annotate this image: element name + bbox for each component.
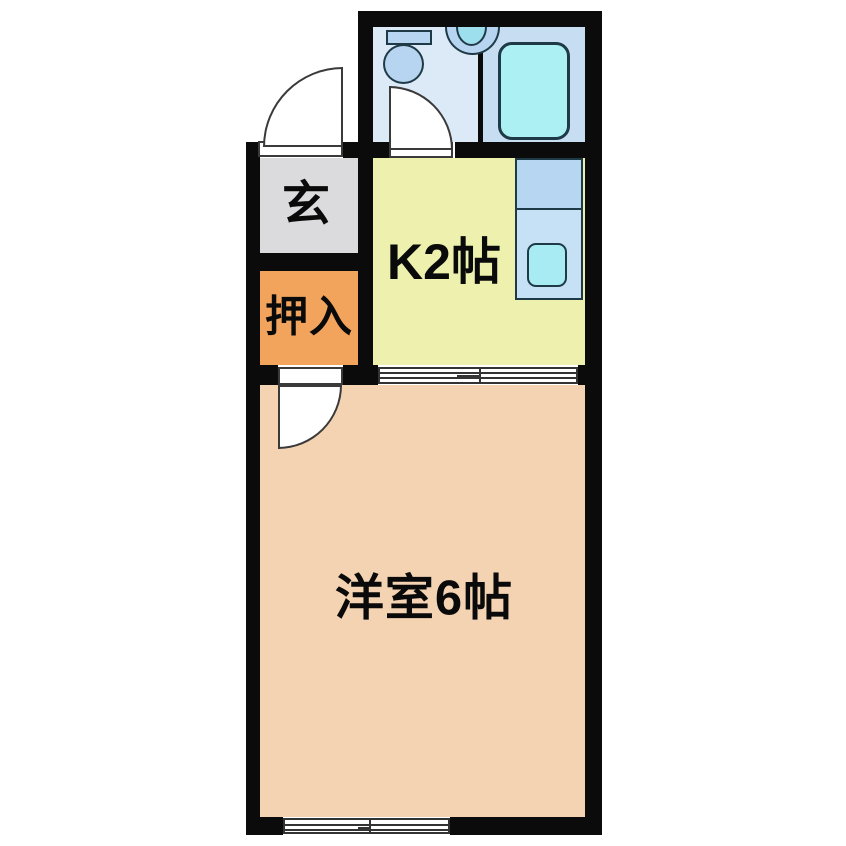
window-lower-line [285,829,448,831]
oshiire-label: 押入 [265,297,353,340]
window-center-tick [369,820,371,832]
wall-bathroom-divider [478,48,483,142]
kitchen-label: K2帖 [387,237,501,287]
sliding-door-center-tick [479,369,481,382]
sliding-door-stub-line [457,375,480,377]
wall-mid-seg-b [343,365,378,385]
kitchen-counter-upper-icon [515,158,583,210]
window-icon [283,818,450,834]
wall-bottom-seg-a [246,817,283,835]
genkan-label: 玄 [282,181,330,229]
sliding-door-lower-line [380,377,576,379]
wall-bathroom-top [358,11,602,27]
western-room-label: 洋室6帖 [335,575,513,624]
toilet-icon [383,44,424,84]
western-room-door-leaf [278,367,343,385]
kitchen-sink-icon [527,243,567,287]
bathtub-icon [498,42,570,140]
wall-right [585,11,602,835]
wall-mid-seg-a [246,365,278,385]
wall-mid-seg-c [578,365,602,385]
window-track-line [285,824,448,826]
wall-bottom-seg-b [450,817,602,835]
wall-bathroom-left [358,11,373,143]
wall-column-right [358,142,373,385]
wall-upper-seg-c [455,142,602,158]
toilet-tank-icon [386,30,432,45]
wall-genkan-oshiire-divider [246,253,373,271]
kitchen-sliding-door-icon [378,367,578,384]
floor-plan: 玄 押入 K2帖 洋室6帖 [0,0,846,846]
entrance-door-swing-icon [263,67,343,147]
sliding-door-track-line [380,372,576,374]
wall-left [246,142,260,835]
